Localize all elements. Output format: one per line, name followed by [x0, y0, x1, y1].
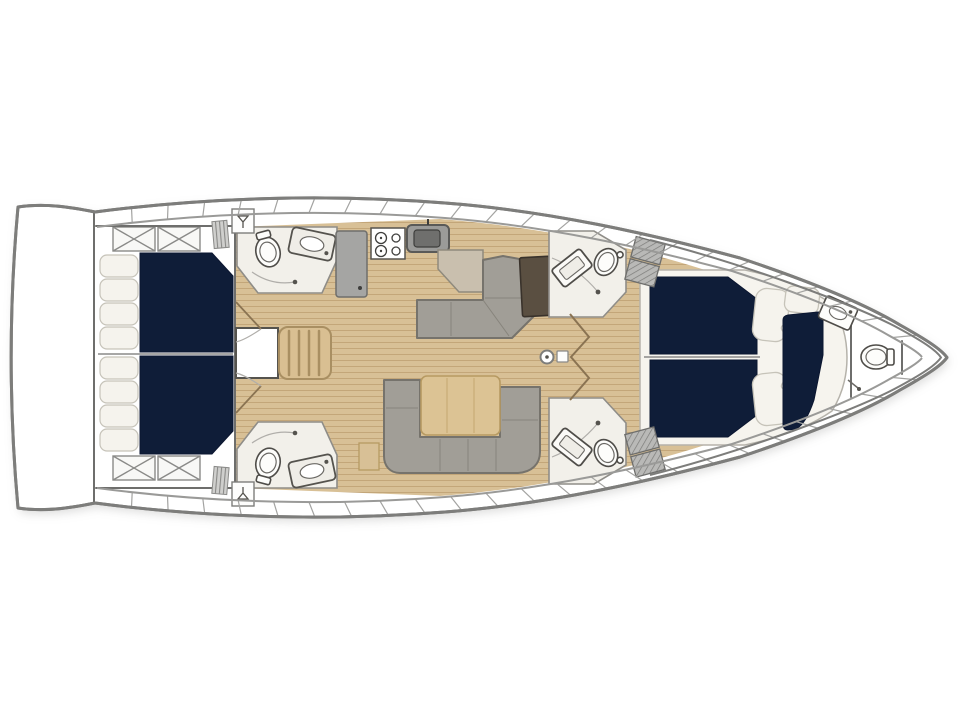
owner-berth-mattress-starboard	[650, 360, 757, 437]
pillow	[100, 327, 138, 349]
pillow	[100, 381, 138, 403]
companionway-stairs	[279, 327, 331, 379]
deck-segment-divider	[168, 496, 169, 511]
pillow	[100, 405, 138, 427]
pillow	[100, 429, 138, 451]
galley-stove	[371, 228, 405, 259]
pillow	[100, 303, 138, 325]
engine-hatch	[236, 328, 278, 378]
shower-head	[293, 280, 298, 285]
deck-shower-box	[232, 482, 254, 506]
stairs-body	[279, 327, 331, 379]
deck-shower-box	[232, 209, 254, 233]
deck-segment-divider	[168, 204, 169, 219]
double-berth-mattress	[140, 253, 233, 352]
toilet	[861, 345, 894, 369]
pillow	[100, 279, 138, 301]
owner-berth-mattress-port	[650, 277, 757, 354]
floor-fitting	[557, 351, 568, 362]
deck-segment-divider	[132, 208, 133, 223]
shower-head	[596, 421, 601, 426]
shower-head	[857, 387, 861, 391]
yacht-floor-plan	[0, 0, 960, 720]
shower-head	[293, 431, 298, 436]
yacht-floor-plan-canvas	[0, 0, 960, 720]
refrigerator	[336, 231, 367, 297]
deck-segment-divider	[132, 492, 133, 507]
fridge-handle	[358, 286, 362, 290]
chart-table	[520, 256, 553, 316]
dinette	[359, 376, 540, 473]
mast-center-dot	[545, 355, 549, 359]
pillow	[100, 357, 138, 379]
pillow	[100, 255, 138, 277]
vent-grille	[212, 466, 229, 494]
shower-head	[596, 290, 601, 295]
aft-head-port	[237, 227, 337, 293]
side-cabinet	[359, 443, 379, 470]
aft-head-starboard	[237, 422, 337, 488]
vent-grille	[212, 220, 229, 248]
dinette-table	[421, 376, 500, 435]
double-berth-mattress	[140, 356, 233, 454]
